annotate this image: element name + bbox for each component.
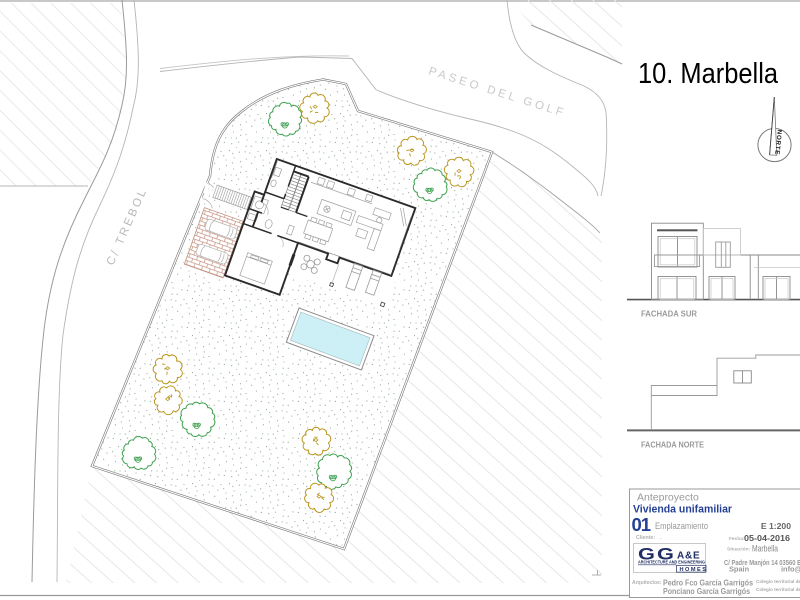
svg-text:05-04-2016: 05-04-2016: [744, 534, 790, 543]
svg-text:Situación:: Situación:: [727, 547, 751, 553]
svg-text:Spain: Spain: [729, 565, 750, 574]
svg-text:Marbella: Marbella: [752, 544, 778, 554]
svg-text:Ponciano García Garrigós: Ponciano García Garrigós: [663, 587, 750, 596]
svg-text:Cliente:: Cliente:: [636, 535, 655, 541]
svg-text:info@: info@: [781, 565, 800, 574]
svg-text:Colegio territorial de V: Colegio territorial de V: [756, 579, 800, 584]
svg-text:FACHADA SUR: FACHADA SUR: [641, 310, 697, 319]
svg-text:Anteproyecto: Anteproyecto: [637, 492, 699, 504]
svg-text:E 1:200: E 1:200: [761, 521, 791, 531]
svg-text:Arquitectos:: Arquitectos:: [632, 580, 662, 586]
svg-text:Emplazamiento: Emplazamiento: [655, 521, 708, 532]
svg-text:HOMES: HOMES: [680, 567, 708, 573]
svg-text:ARCHITECTURE AND ENGINEERING: ARCHITECTURE AND ENGINEERING: [638, 560, 705, 565]
svg-text:01: 01: [632, 514, 651, 535]
svg-text:FACHADA NORTE: FACHADA NORTE: [641, 441, 705, 450]
svg-text:Fecha:: Fecha:: [729, 536, 745, 542]
svg-text:10. Marbella: 10. Marbella: [638, 58, 778, 90]
svg-text:Colegio territorial de A: Colegio territorial de A: [756, 587, 800, 592]
